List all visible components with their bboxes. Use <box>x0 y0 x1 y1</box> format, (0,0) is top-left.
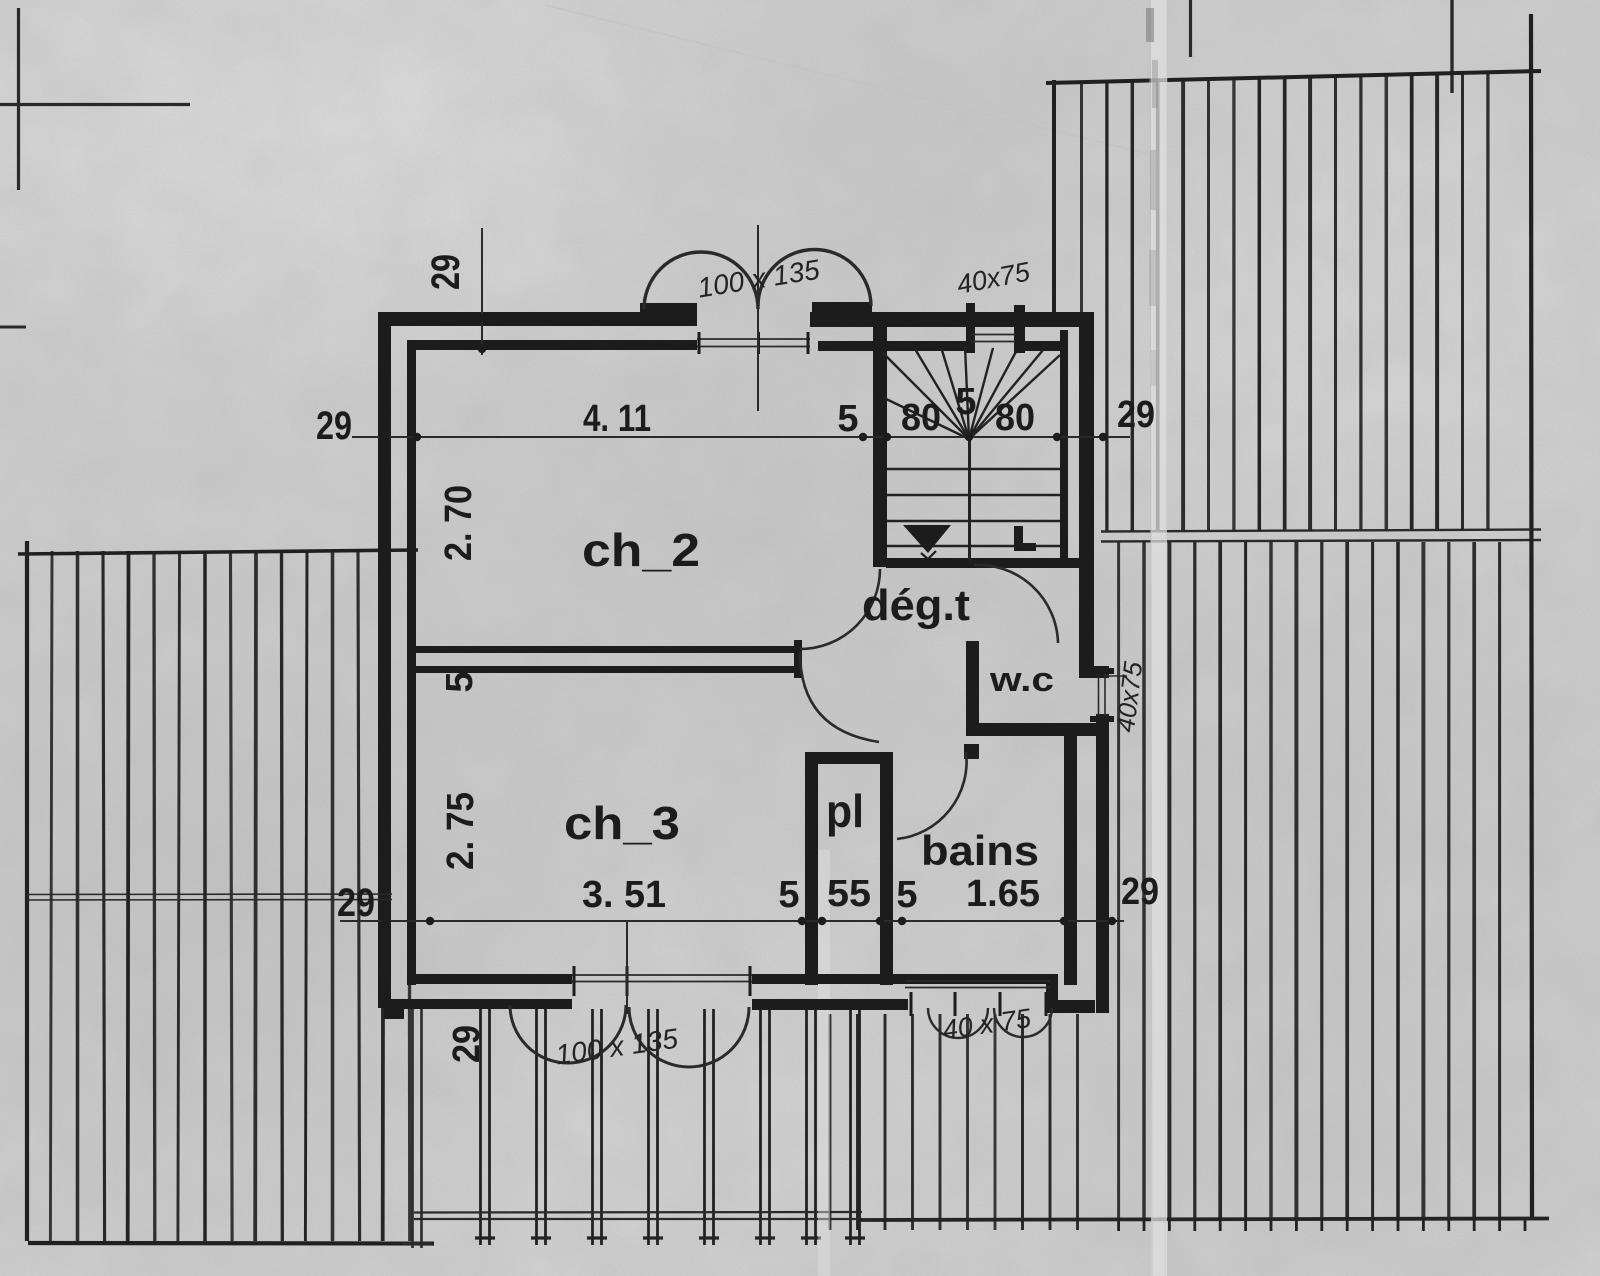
svg-text:w.c: w.c <box>989 661 1054 699</box>
svg-text:3. 51: 3. 51 <box>582 874 666 916</box>
svg-text:5: 5 <box>837 398 858 440</box>
svg-text:29: 29 <box>446 1025 488 1063</box>
svg-text:5: 5 <box>778 874 799 916</box>
svg-text:4. 11: 4. 11 <box>583 398 651 440</box>
svg-text:dég.t: dég.t <box>862 581 970 630</box>
svg-text:80: 80 <box>995 397 1035 439</box>
svg-text:5: 5 <box>955 381 976 423</box>
svg-text:2. 75: 2. 75 <box>440 792 482 870</box>
svg-text:29: 29 <box>1117 394 1155 436</box>
svg-text:5: 5 <box>896 874 917 916</box>
svg-text:55: 55 <box>827 873 871 915</box>
svg-text:bains: bains <box>921 827 1039 874</box>
svg-text:pl: pl <box>826 785 864 837</box>
svg-text:ch_3: ch_3 <box>564 797 680 849</box>
svg-text:5: 5 <box>439 671 481 692</box>
svg-text:29: 29 <box>337 881 375 925</box>
svg-text:29: 29 <box>424 254 468 290</box>
svg-text:29: 29 <box>316 404 352 448</box>
svg-text:80: 80 <box>901 397 941 439</box>
svg-text:29: 29 <box>1121 871 1159 913</box>
svg-text:1.65: 1.65 <box>966 873 1040 915</box>
svg-text:2. 70: 2. 70 <box>438 485 480 561</box>
svg-text:ch_2: ch_2 <box>582 524 700 576</box>
